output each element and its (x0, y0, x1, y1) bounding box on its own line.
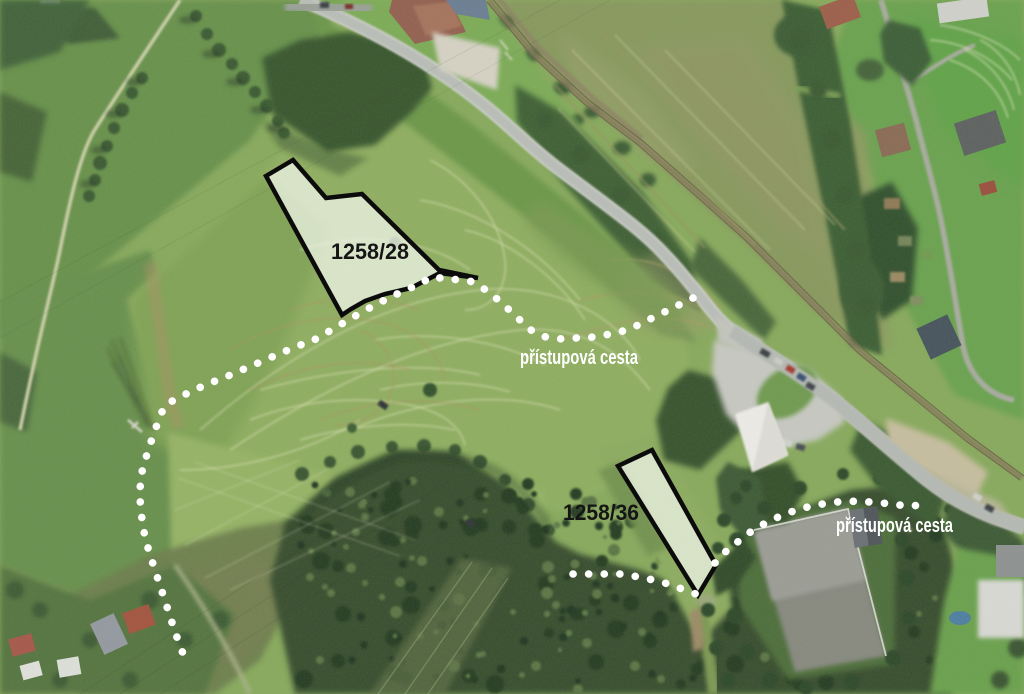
svg-text:přístupová cesta: přístupová cesta (836, 515, 954, 537)
svg-text:1258/28: 1258/28 (331, 239, 409, 264)
svg-text:přístupová cesta: přístupová cesta (520, 347, 639, 369)
svg-text:1258/36: 1258/36 (563, 500, 639, 525)
